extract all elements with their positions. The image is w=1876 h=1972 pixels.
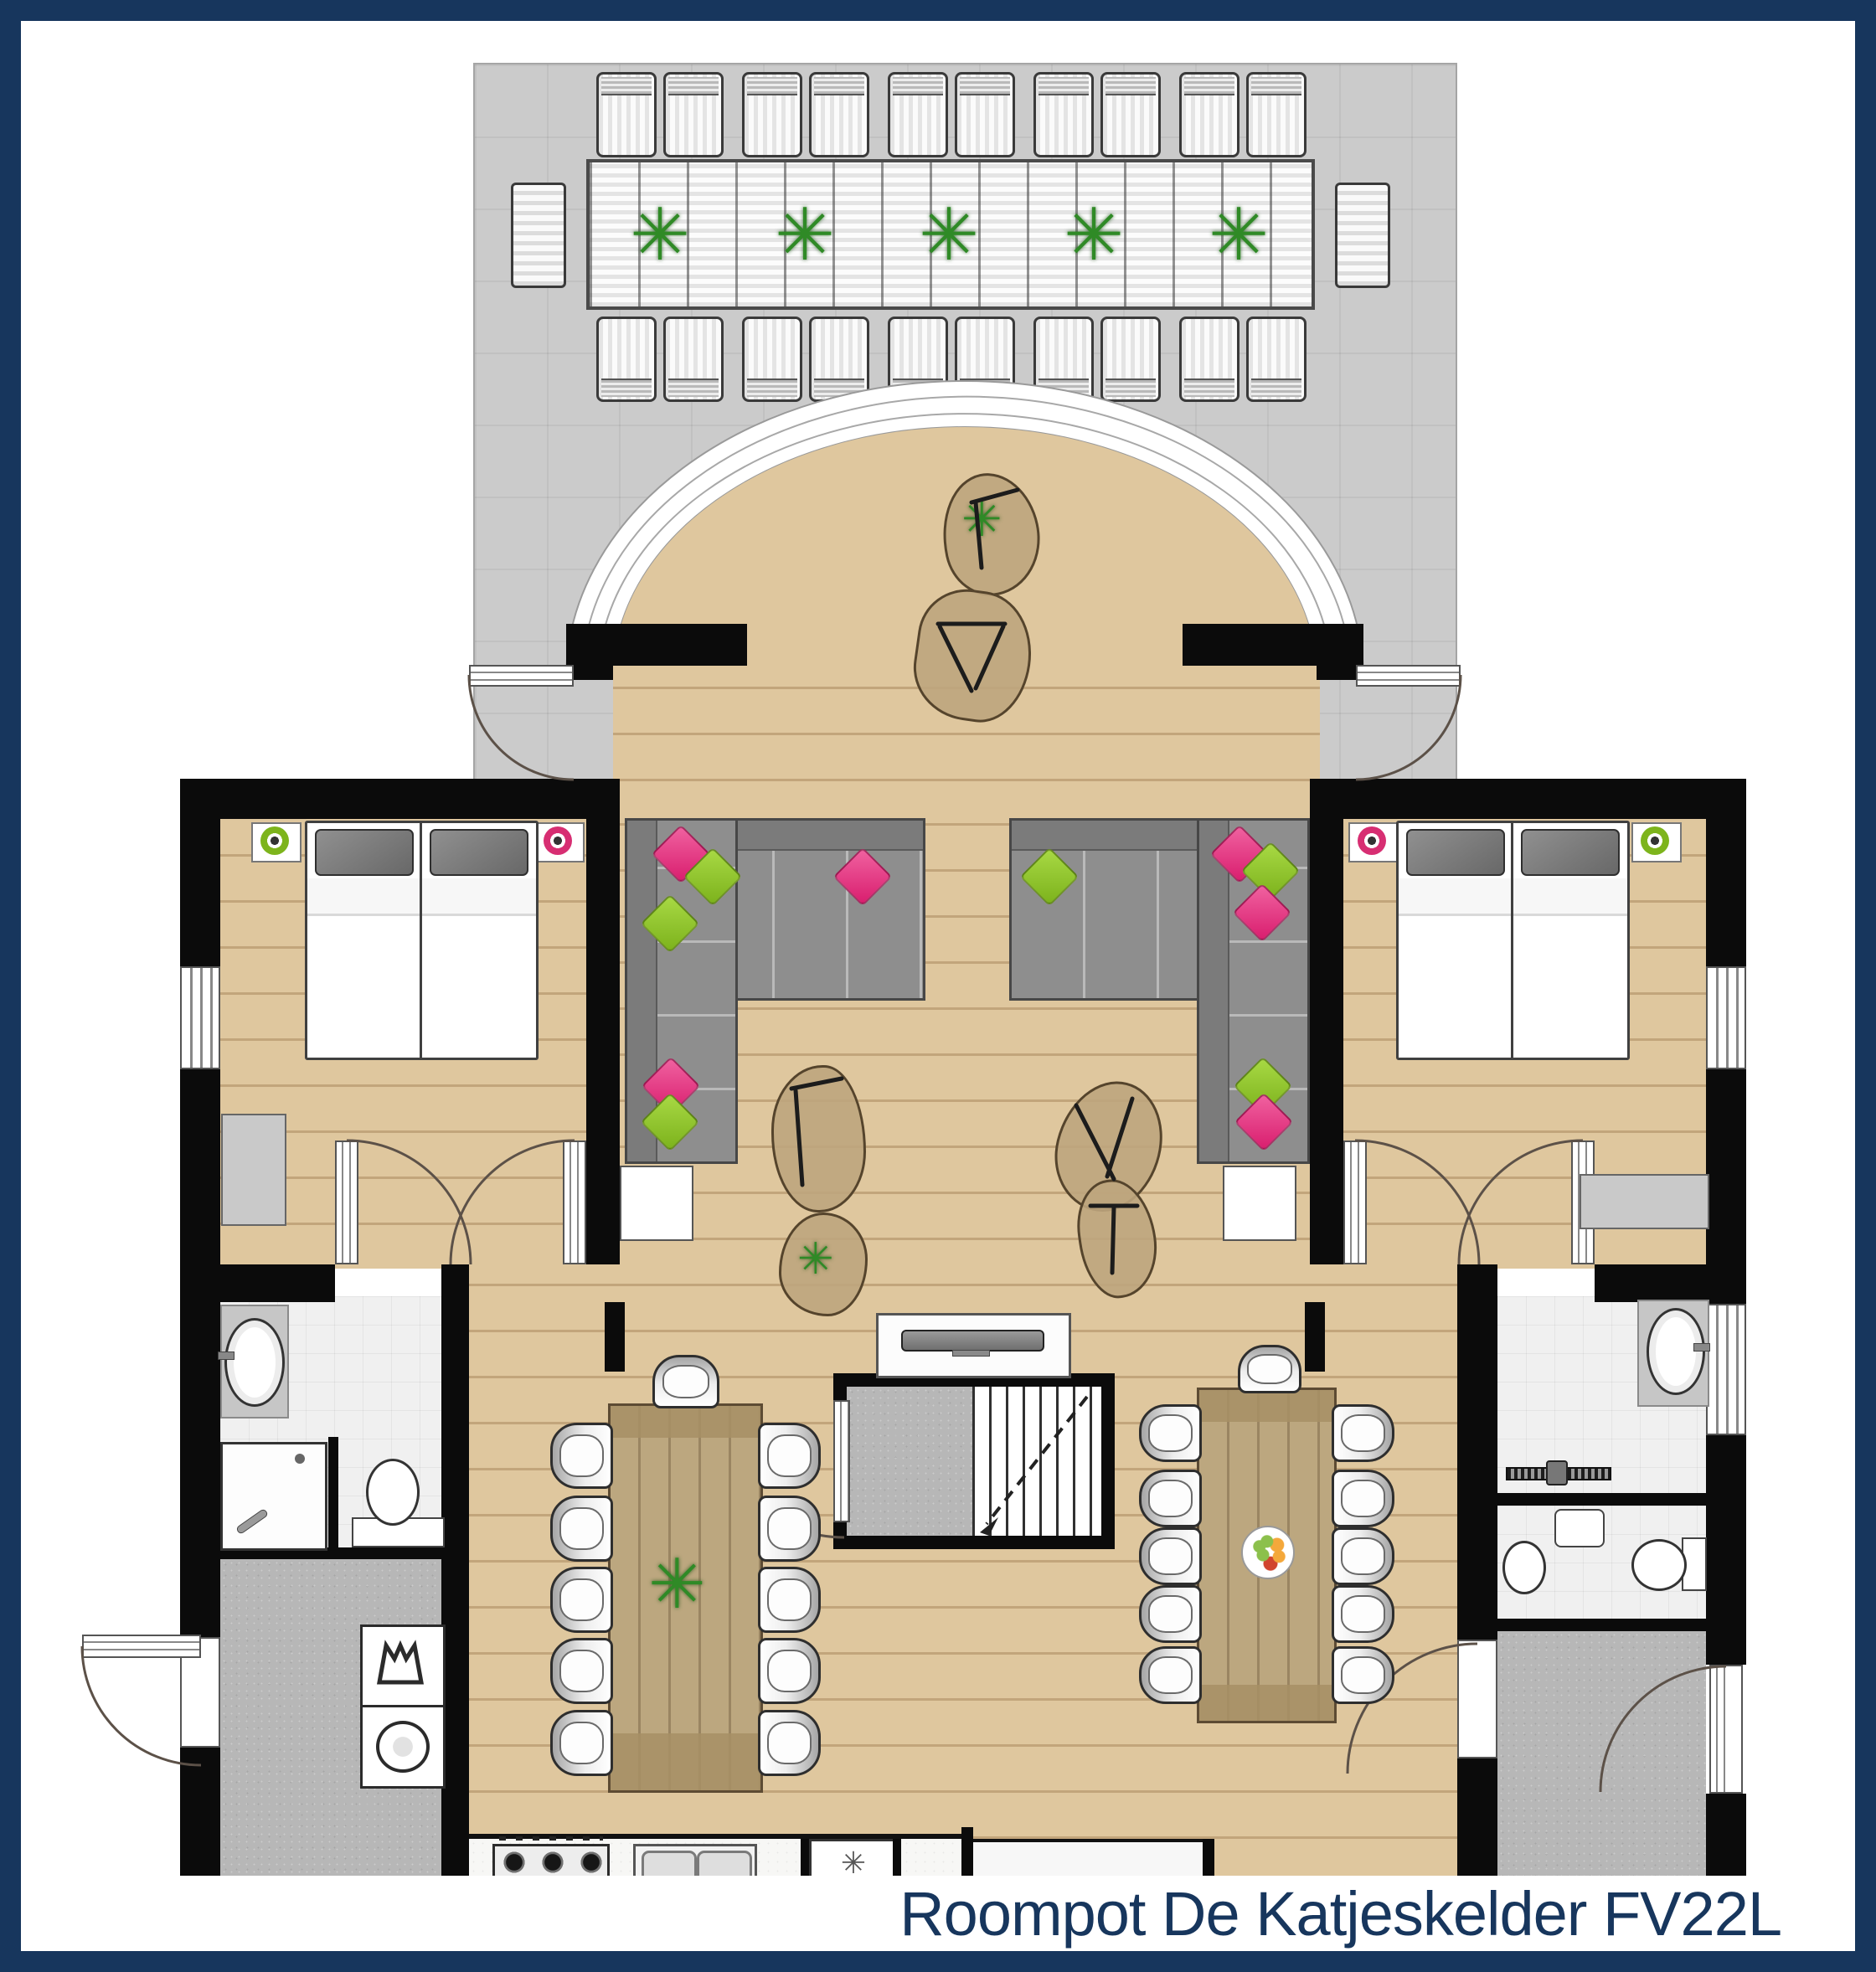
dining-chair [1139, 1527, 1202, 1585]
shower-mixer-icon [1546, 1460, 1568, 1485]
dining-chair [550, 1710, 613, 1776]
burner-icon [578, 1849, 605, 1876]
dining-chair [1139, 1585, 1202, 1643]
burner-icon [501, 1849, 528, 1876]
dining-chair [550, 1496, 613, 1562]
toilet [366, 1459, 420, 1526]
dining-chair [550, 1423, 613, 1489]
dining-chair [1139, 1470, 1202, 1527]
bidet [1502, 1541, 1546, 1594]
dining-chair [1332, 1646, 1394, 1704]
dining-chair [1139, 1404, 1202, 1462]
dining-chair [758, 1638, 821, 1704]
shower-drain-icon [295, 1454, 305, 1464]
dining-chair [1332, 1527, 1394, 1585]
dining-chair [758, 1710, 821, 1776]
shower-tray [220, 1442, 327, 1551]
dining-chair [758, 1567, 821, 1633]
floorplan-canvas: ✳ ✳ ✳ ✳ ✳ [0, 0, 1876, 1972]
dining-chair [1332, 1585, 1394, 1643]
table-end [611, 1406, 760, 1438]
dryer-basket-icon [363, 1627, 438, 1701]
table-end [1199, 1390, 1334, 1422]
plant-icon: ✳ [648, 1551, 706, 1619]
dining-chair [1332, 1470, 1394, 1527]
burner-icon [539, 1849, 566, 1876]
dining-chair [550, 1638, 613, 1704]
table-bench [1199, 1685, 1334, 1721]
dining-chair [1139, 1646, 1202, 1704]
wall [961, 1827, 973, 1882]
dining-chair [758, 1423, 821, 1489]
sink [224, 1318, 285, 1407]
fruit-bowl [1241, 1526, 1295, 1579]
toilet [1631, 1539, 1687, 1591]
dryer [360, 1624, 446, 1708]
sink [1647, 1308, 1705, 1395]
dining-chair [1332, 1404, 1394, 1462]
faucet-icon [218, 1352, 234, 1360]
hob-knobs [499, 1836, 603, 1841]
dining-chair [1238, 1345, 1301, 1393]
dining-chair [550, 1567, 613, 1633]
dining-chair [652, 1355, 719, 1408]
washing-machine [360, 1705, 446, 1789]
hand-basin [1554, 1509, 1605, 1547]
table-bench [611, 1733, 760, 1790]
coffee-table-twigs [0, 0, 1876, 1972]
faucet-icon [1693, 1343, 1710, 1352]
dining-chair [758, 1496, 821, 1562]
plan-title: Roompot De Katjeskelder FV22L [21, 1876, 1855, 1951]
